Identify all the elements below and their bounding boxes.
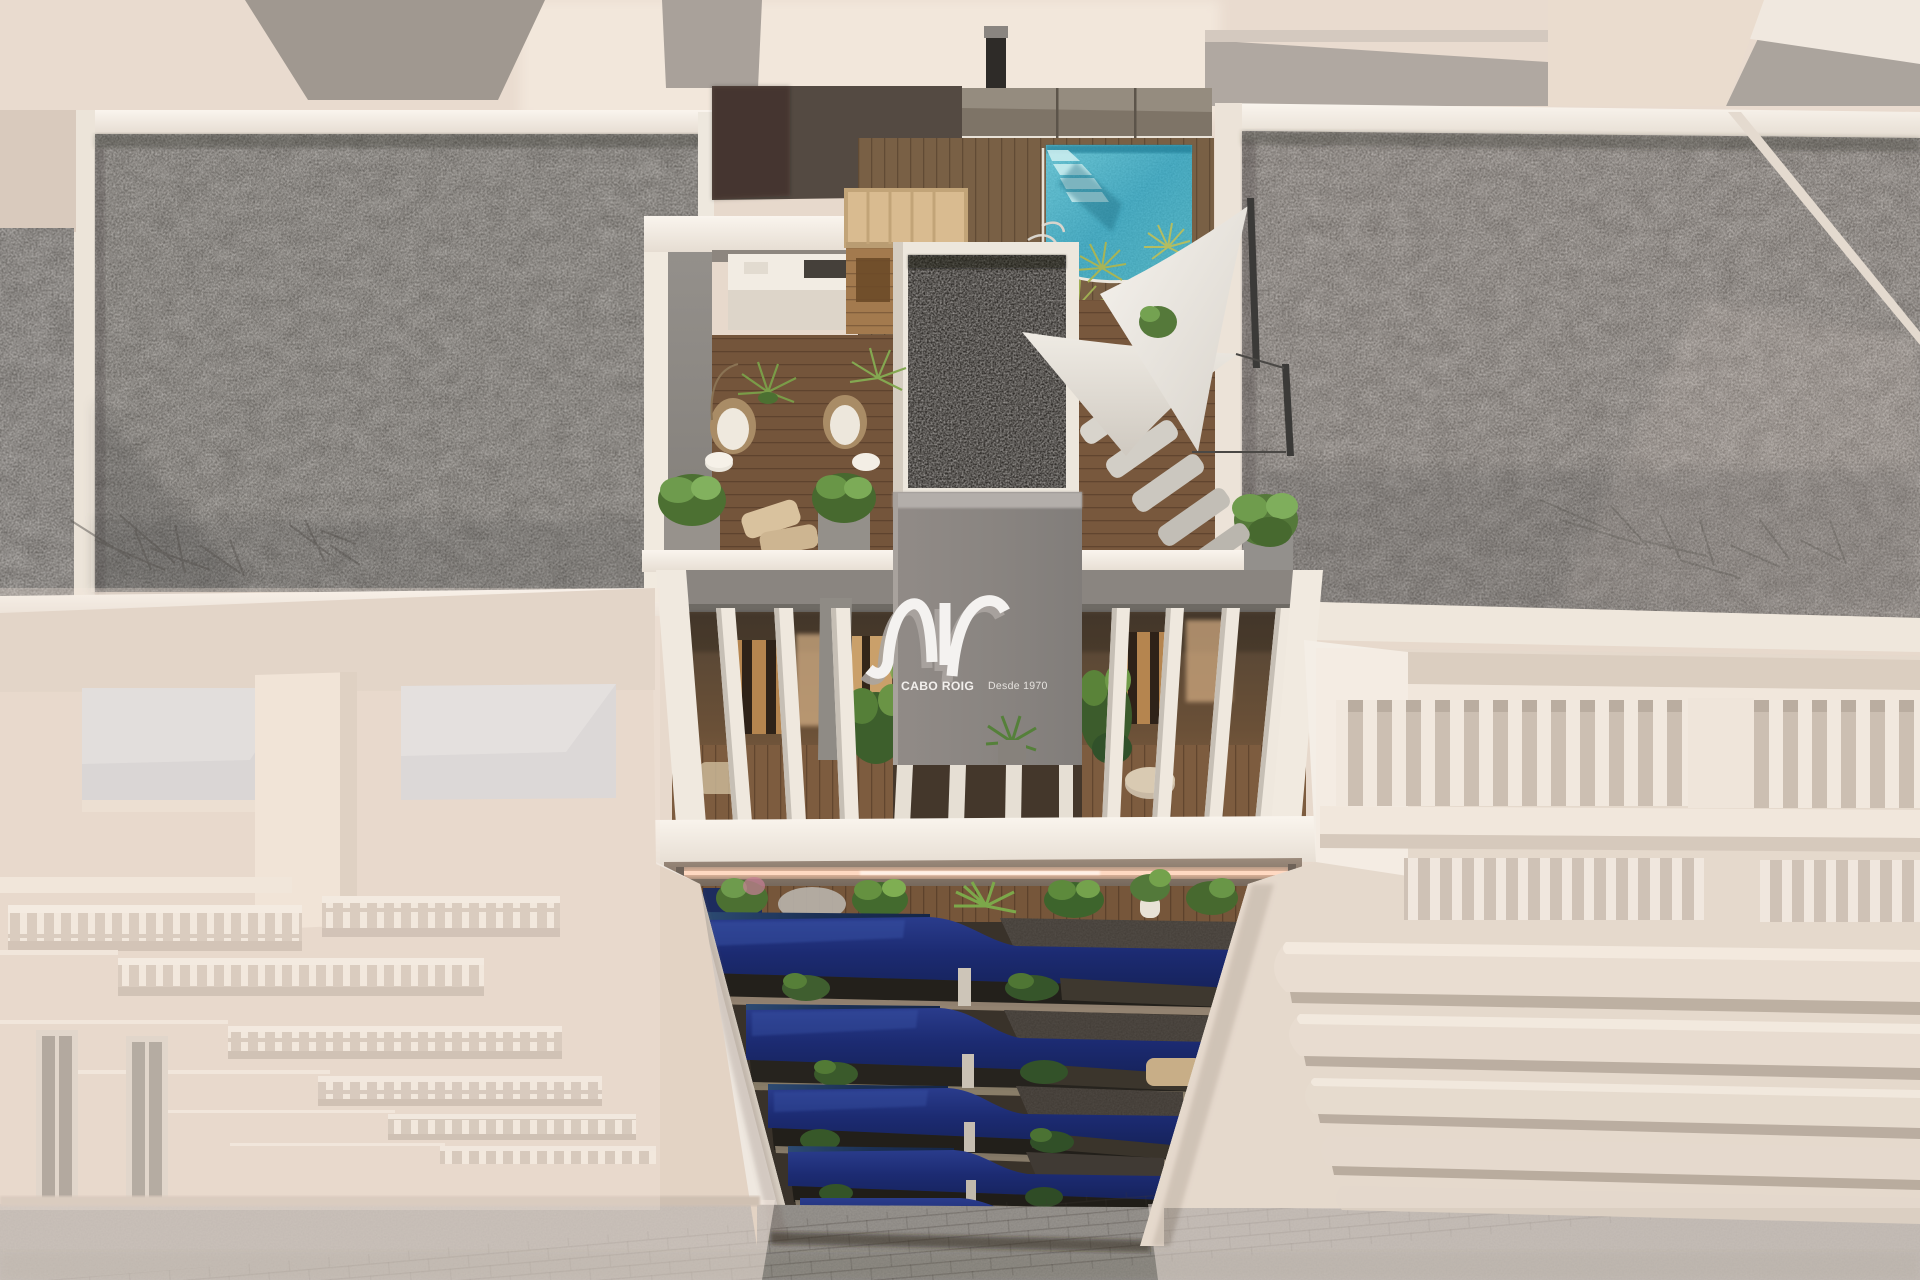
svg-text:CABO ROIG: CABO ROIG: [901, 679, 974, 693]
svg-text:Desde 1970: Desde 1970: [988, 680, 1048, 692]
